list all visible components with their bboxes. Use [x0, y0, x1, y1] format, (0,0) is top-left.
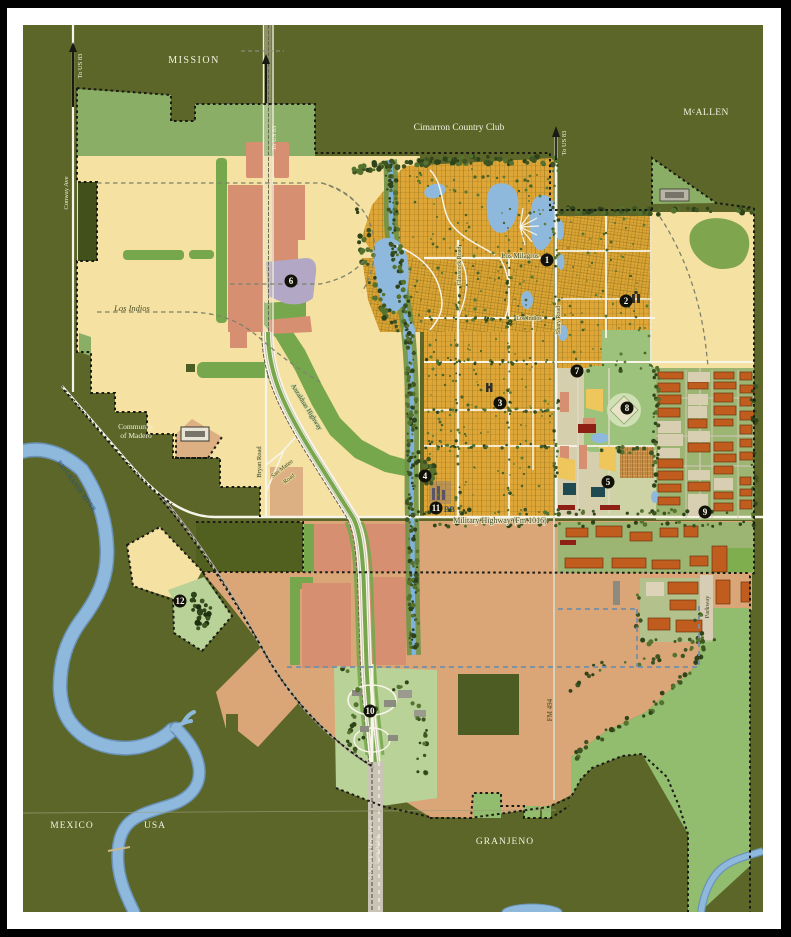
- svg-text:USA: USA: [144, 821, 166, 831]
- svg-text:Cimarron Country Club: Cimarron Country Club: [414, 123, 505, 133]
- svg-text:To US 83: To US 83: [561, 131, 568, 156]
- svg-text:1: 1: [545, 255, 550, 265]
- svg-text:Conway Ave: Conway Ave: [63, 176, 70, 209]
- svg-text:9: 9: [703, 507, 708, 517]
- svg-text:6: 6: [289, 276, 294, 286]
- svg-text:MEXICO: MEXICO: [50, 821, 93, 831]
- svg-text:of Madero: of Madero: [120, 431, 152, 440]
- svg-text:Los Milagros: Los Milagros: [501, 252, 539, 260]
- svg-text:Los Indios: Los Indios: [516, 316, 542, 322]
- svg-text:Los Indios: Los Indios: [113, 303, 150, 313]
- svg-text:Parkway: Parkway: [704, 595, 711, 618]
- svg-text:11: 11: [432, 503, 441, 513]
- svg-text:7: 7: [575, 366, 580, 376]
- svg-text:McALLEN: McALLEN: [683, 107, 729, 118]
- svg-text:Community: Community: [118, 422, 154, 431]
- svg-text:Bryan Road: Bryan Road: [256, 446, 263, 478]
- svg-text:MISSION: MISSION: [168, 55, 220, 66]
- svg-text:Trade Bridge: Trade Bridge: [375, 835, 381, 865]
- svg-text:To US 83: To US 83: [271, 126, 278, 151]
- svg-text:To US 83: To US 83: [77, 54, 84, 79]
- svg-text:3: 3: [498, 398, 503, 408]
- svg-text:GRANJENO: GRANJENO: [476, 837, 534, 847]
- svg-text:8: 8: [625, 403, 630, 413]
- svg-text:Shary Road: Shary Road: [556, 306, 562, 334]
- svg-text:To Anzalduas International: To Anzalduas International: [368, 820, 374, 880]
- svg-text:2: 2: [624, 296, 629, 306]
- svg-text:10: 10: [366, 706, 376, 716]
- svg-text:4: 4: [423, 471, 428, 481]
- svg-text:5: 5: [606, 477, 611, 487]
- svg-text:Glasscock Road: Glasscock Road: [457, 247, 463, 286]
- svg-text:Military Highway (Fm 1016): Military Highway (Fm 1016): [453, 516, 547, 525]
- svg-text:FM 494: FM 494: [546, 698, 554, 721]
- svg-text:12: 12: [176, 596, 186, 606]
